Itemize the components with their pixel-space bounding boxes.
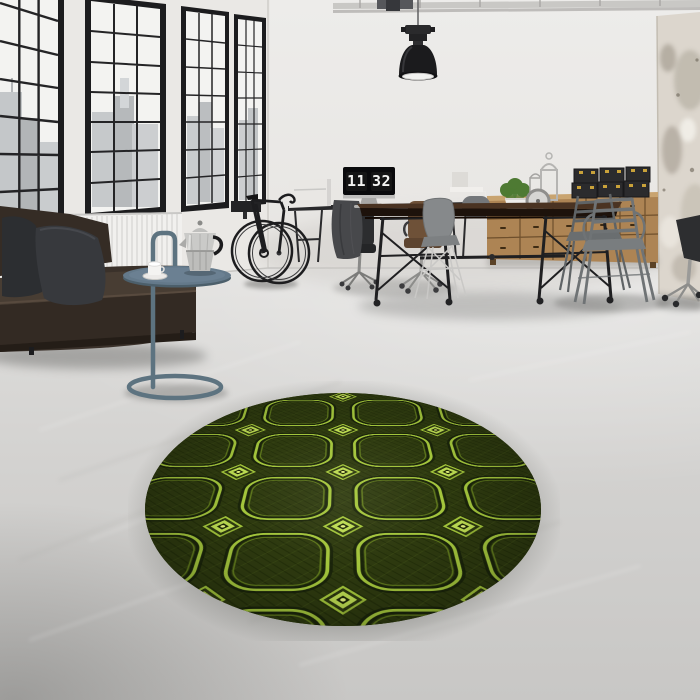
window-2	[85, 0, 166, 220]
city-view	[239, 108, 258, 200]
window-3	[181, 6, 229, 212]
clock-minutes: 32	[371, 172, 392, 191]
loft-room-photo: 11 32	[0, 0, 700, 700]
ceiling-pipes	[333, 0, 700, 13]
window-4	[234, 14, 266, 207]
window-1	[0, 0, 64, 238]
distressed-plaster-column	[657, 12, 700, 310]
green-round-rug	[145, 393, 541, 626]
clock-hours: 11	[346, 172, 367, 191]
flip-clock: 11 32	[343, 169, 395, 193]
jacket	[332, 200, 363, 259]
pillow-right	[35, 226, 105, 305]
rug-lighting	[145, 393, 541, 626]
storage-boxes	[572, 167, 650, 198]
printer	[289, 179, 331, 208]
